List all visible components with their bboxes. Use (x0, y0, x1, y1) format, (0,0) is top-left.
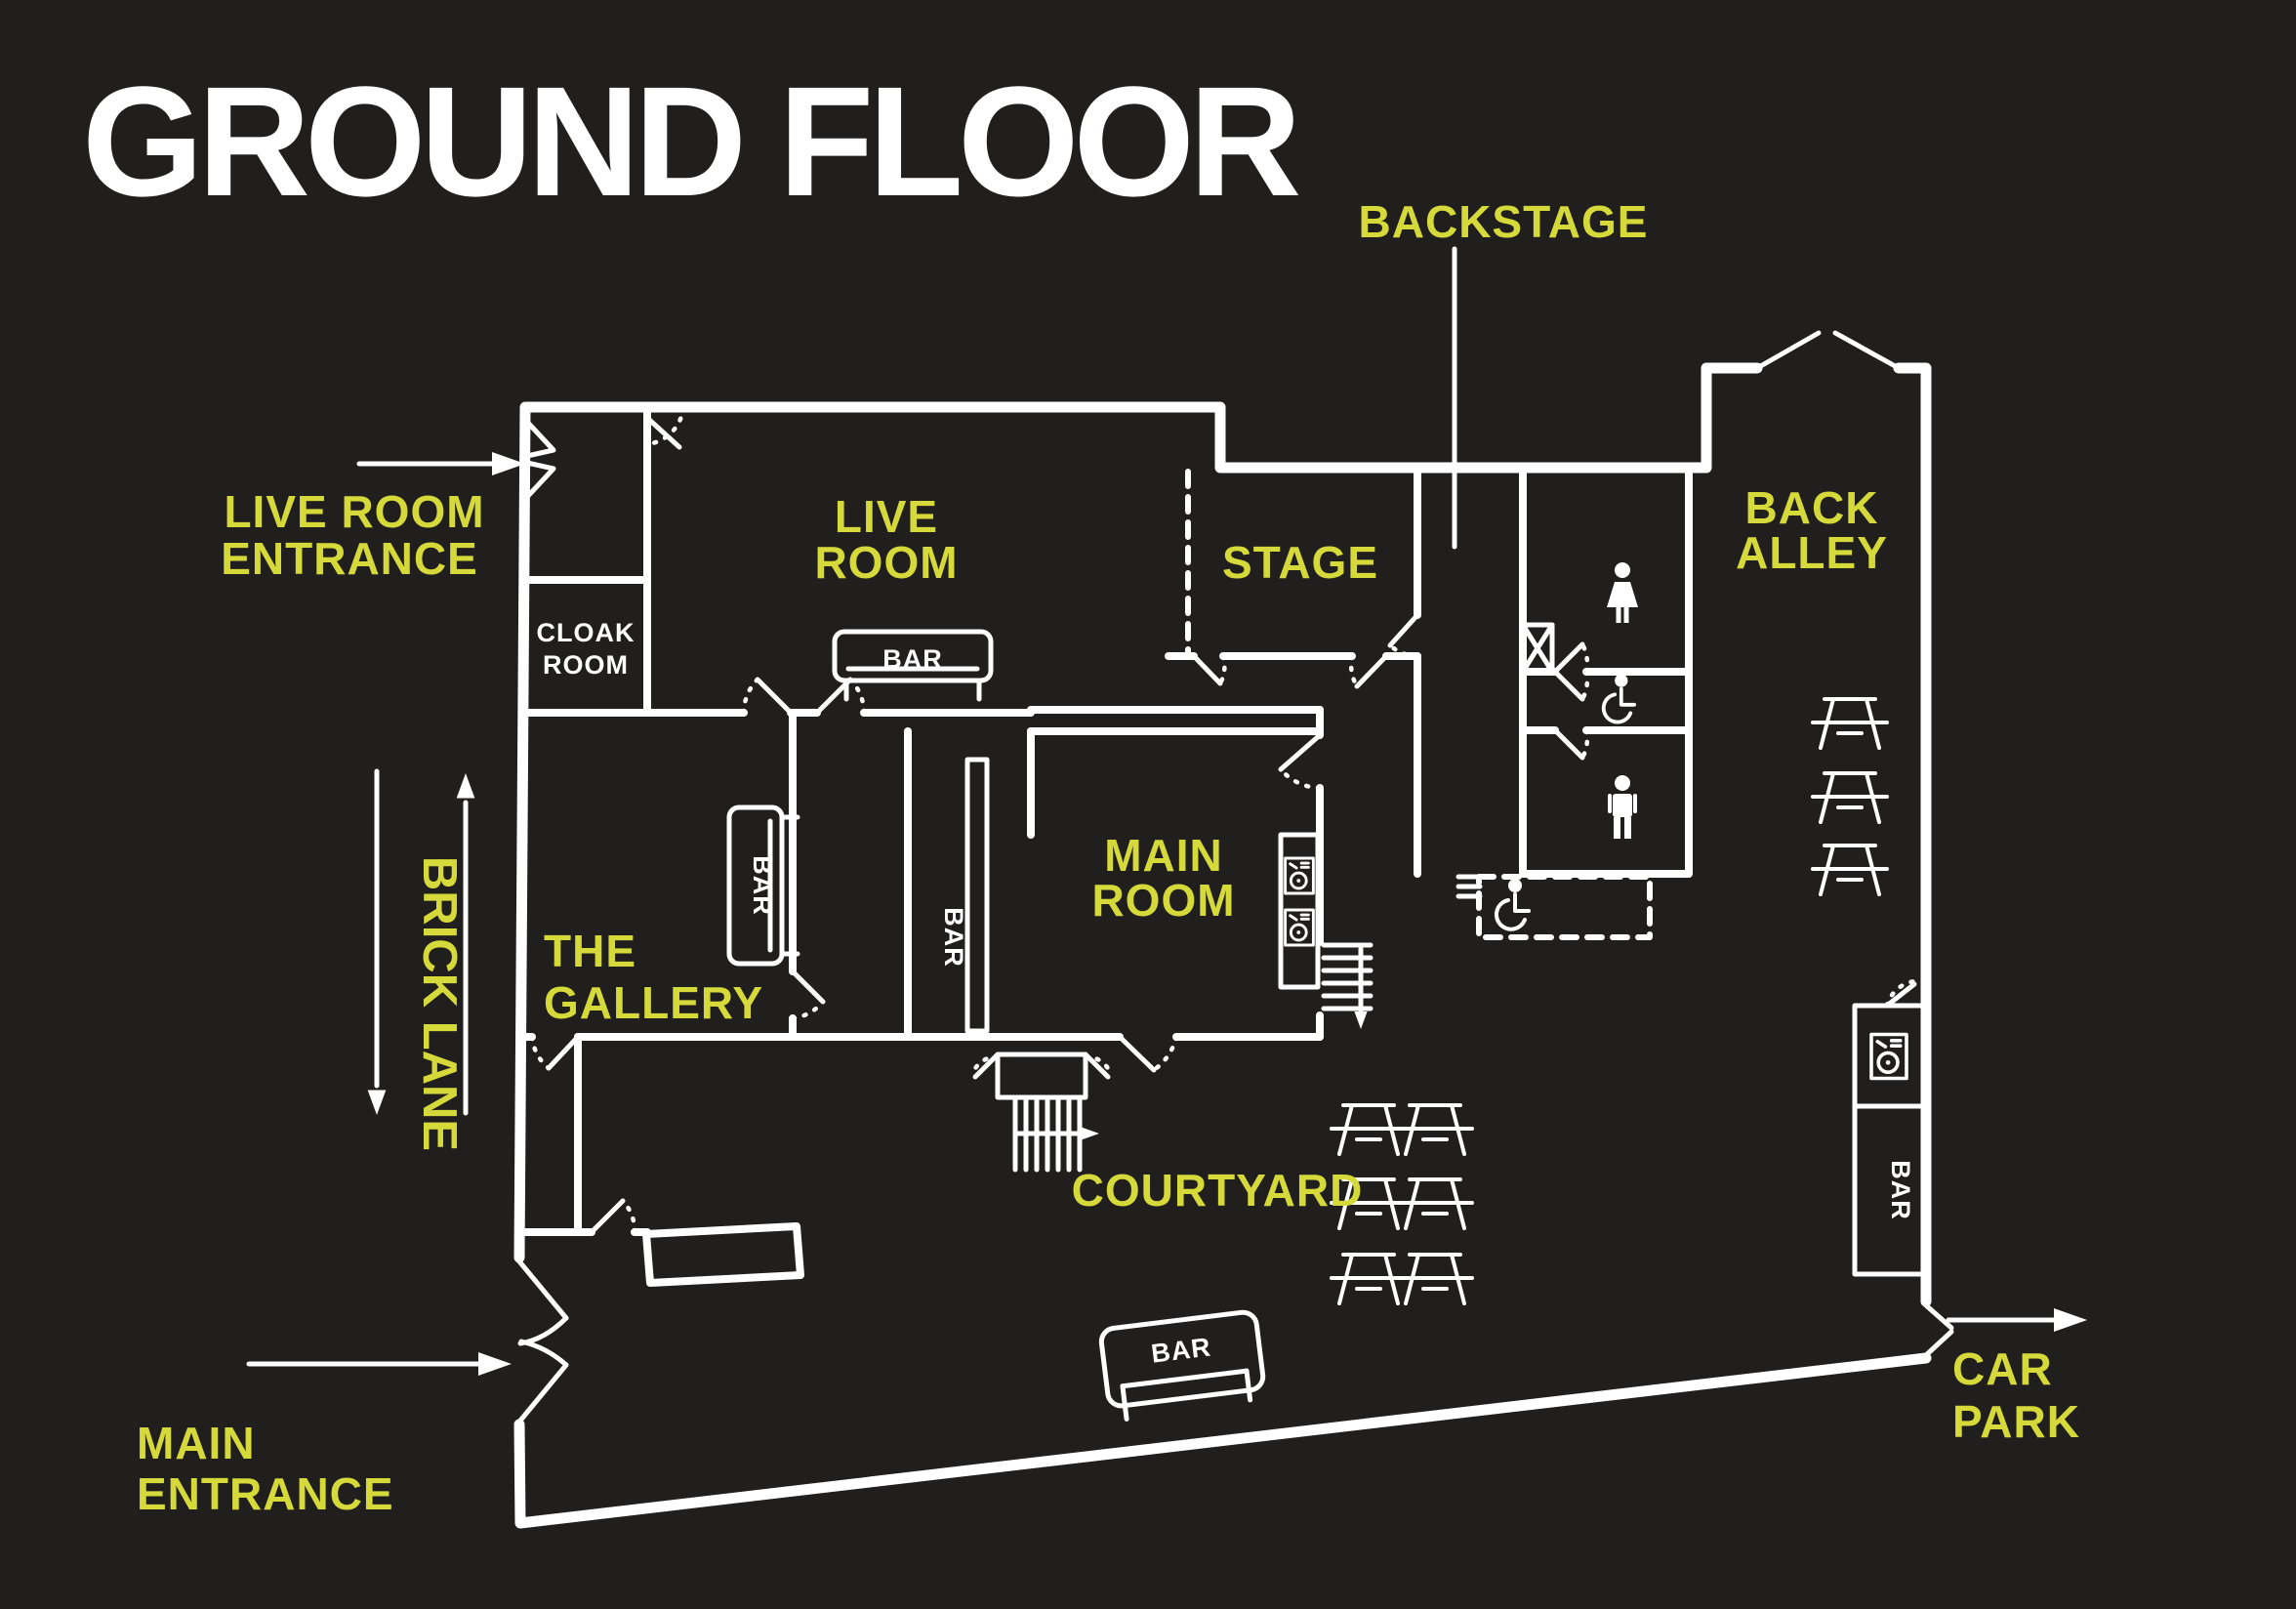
stage-label: STAGE (1222, 537, 1378, 588)
picnic-table-icon (1398, 1255, 1472, 1303)
main-entrance-doors (519, 1261, 566, 1421)
back-alley-gate (1757, 333, 1899, 368)
arrow-icon (457, 773, 475, 799)
dj-decks-icon (1286, 910, 1314, 945)
picnic-table-icon (1813, 699, 1887, 748)
live-room-entrance-label-line1: LIVE ROOM (224, 486, 484, 537)
picnic-table-icon (1813, 846, 1887, 894)
accessible-toilet-icon (1604, 674, 1634, 722)
page-title: GROUND FLOOR (82, 54, 1299, 228)
live-room-label-line2: ROOM (814, 537, 958, 588)
corridor-bar-label: BAR (939, 907, 968, 968)
gallery-label-line1: THE (544, 926, 636, 976)
dj-decks-icon (1871, 1035, 1906, 1079)
courtyard-stairs (972, 1054, 1111, 1170)
picnic-table-icon (1813, 773, 1887, 822)
arrow-icon (1080, 1127, 1099, 1140)
back-alley-picnic-tables (1813, 699, 1887, 894)
accessible-platform (1479, 877, 1650, 937)
main-room-label-line2: ROOM (1091, 875, 1235, 926)
live-room-entrance-arrow (359, 452, 525, 475)
main-entrance-label-line2: ENTRANCE (137, 1468, 394, 1519)
main-room-label-line1: MAIN (1104, 830, 1223, 881)
picnic-table-icon (1332, 1105, 1406, 1154)
courtyard-bar-counter: BAR (1100, 1311, 1266, 1422)
floor-plan-page: GROUND FLOOR (0, 0, 2296, 1609)
back-alley-label-line1: BACK (1745, 482, 1879, 533)
accessible-toilet-icon (1496, 879, 1529, 929)
main-room-dj-booth (1281, 835, 1318, 987)
live-room-bar-label: BAR (882, 644, 943, 674)
picnic-table-icon (1398, 1179, 1472, 1228)
gallery-bar-label: BAR (748, 855, 777, 916)
live-room-entrance-label-line2: ENTRANCE (221, 533, 478, 584)
back-alley-bar-label: BAR (1886, 1160, 1915, 1220)
brick-lane-label: BRICK LANE (413, 856, 466, 1151)
arrow-icon (1354, 1011, 1367, 1029)
car-park-label-line2: PARK (1952, 1396, 2080, 1447)
courtyard-label: COURTYARD (1072, 1165, 1364, 1216)
courtyard-bar-label: BAR (1150, 1332, 1213, 1368)
arrow-icon (478, 1352, 512, 1376)
floor-plan-canvas: GROUND FLOOR (0, 0, 2296, 1609)
car-park-label-line1: CAR (1952, 1343, 2053, 1394)
main-entrance-label-line1: MAIN (137, 1418, 256, 1468)
lift-box (1523, 625, 1552, 672)
cloak-room-label-line2: ROOM (543, 650, 629, 680)
back-alley-label-line2: ALLEY (1736, 527, 1888, 578)
main-entrance-arrow (249, 1352, 512, 1376)
arrow-icon (2054, 1308, 2087, 1332)
corridor-bar-counter (967, 760, 987, 1031)
cloak-room-label-line1: CLOAK (537, 618, 635, 647)
car-park-door (1926, 1305, 1951, 1355)
dj-decks-icon (1286, 858, 1314, 893)
doors (527, 407, 1915, 1232)
picnic-table-icon (1332, 1255, 1406, 1303)
main-room-stairs (1324, 945, 1371, 1029)
male-toilet-icon (1608, 775, 1637, 839)
courtyard-dj-booth (1855, 1006, 1923, 1106)
live-room-label-line1: LIVE (835, 491, 938, 542)
car-park-arrow (1948, 1308, 2087, 1332)
backstage-label: BACKSTAGE (1359, 196, 1649, 247)
female-toilet-icon (1607, 562, 1638, 623)
gallery-label-line2: GALLERY (544, 977, 763, 1028)
picnic-table-icon (1398, 1105, 1472, 1154)
arrow-icon (368, 1091, 387, 1116)
